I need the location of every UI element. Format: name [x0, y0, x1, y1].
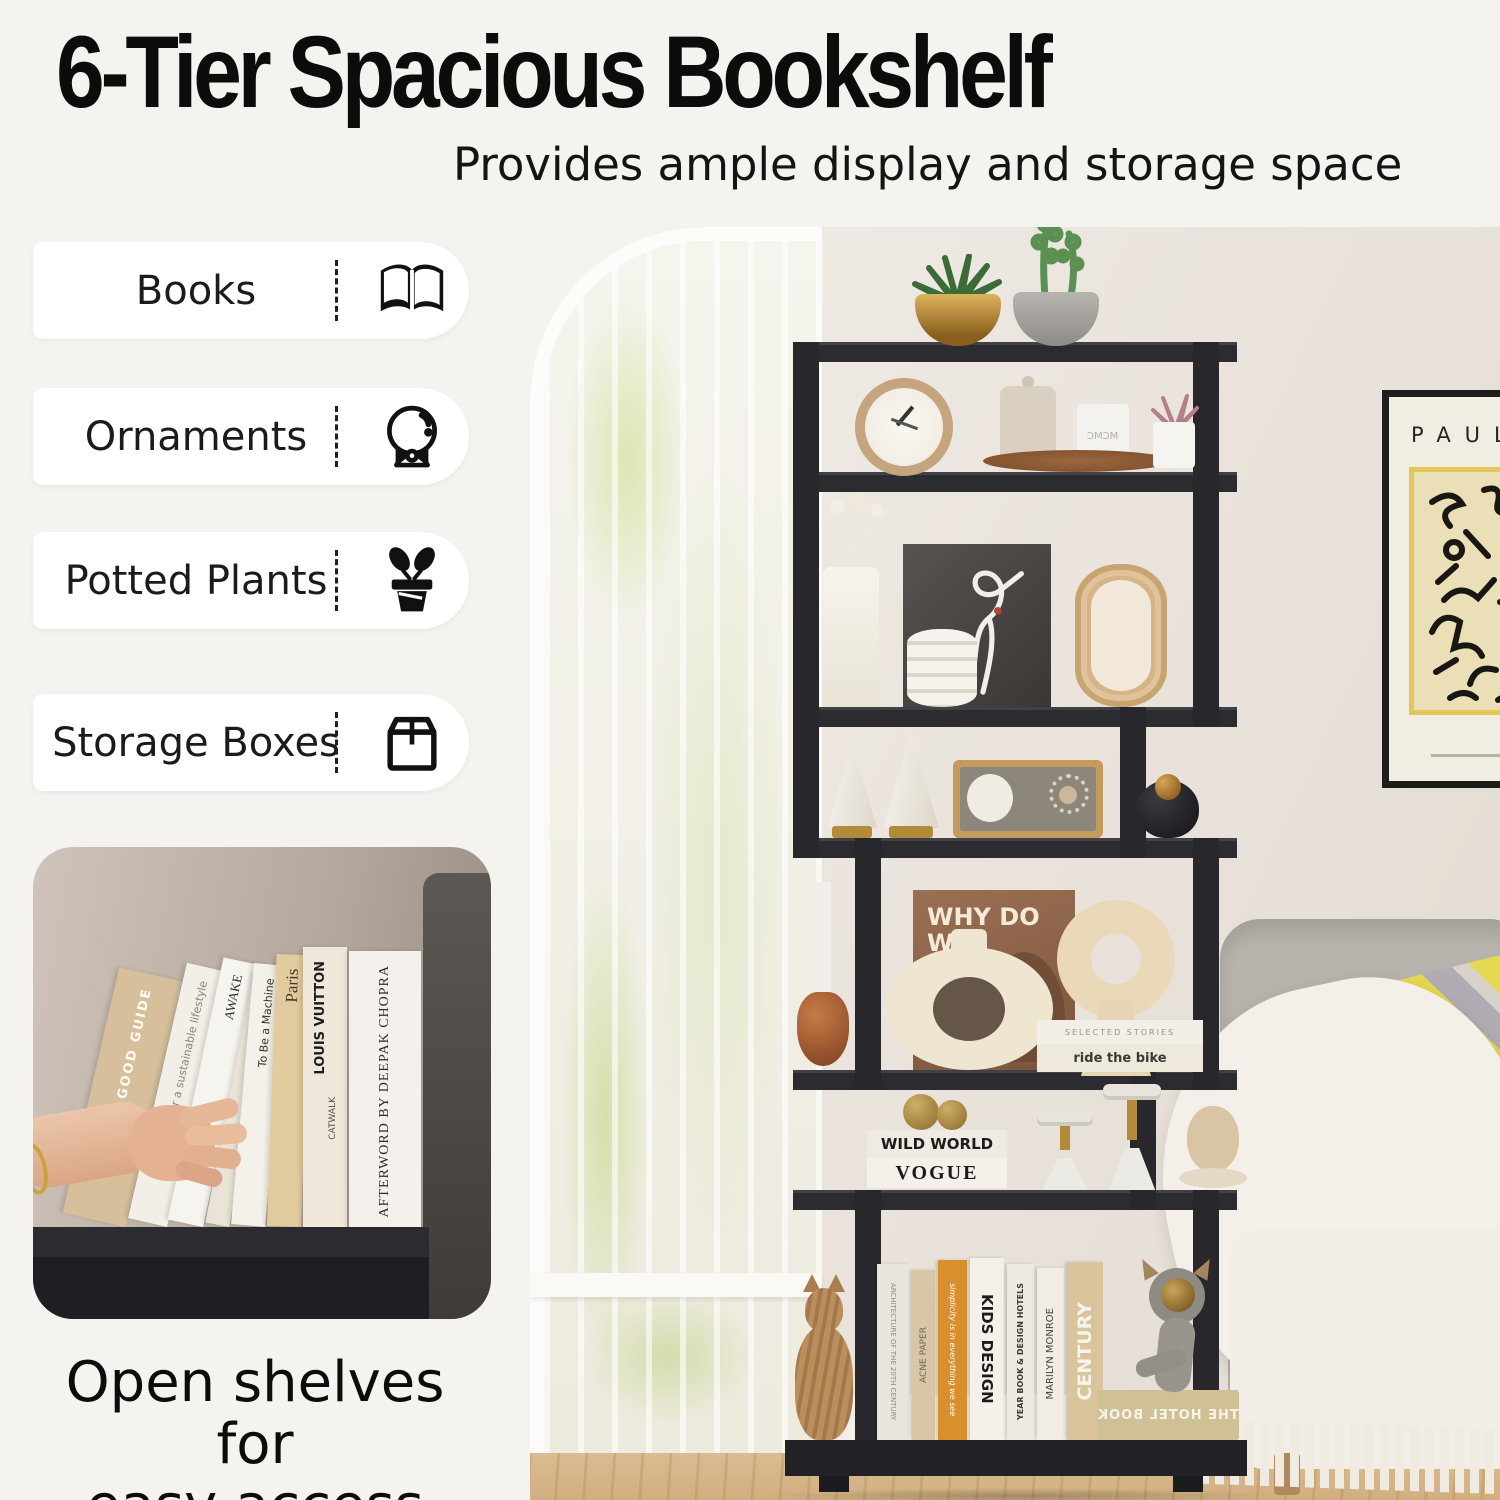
sheer-curtain — [544, 241, 822, 1453]
page-title: 6-Tier Spacious Bookshelf — [56, 14, 1049, 131]
shelf-base — [785, 1440, 1247, 1476]
shelf-board — [33, 1227, 429, 1257]
book-spine: KIDS DESIGN — [970, 1258, 1004, 1440]
poster-caption-line — [1431, 754, 1500, 757]
gold-ball-ornament — [937, 1100, 967, 1130]
book-spine: MARILYN MONROE — [1037, 1268, 1064, 1440]
gold-ball-ornament — [903, 1094, 939, 1130]
window-sill — [530, 1273, 822, 1297]
poster-artwork — [1409, 467, 1500, 715]
feature-label: Potted Plants — [51, 532, 341, 629]
cone-base — [832, 826, 872, 838]
dashed-divider — [335, 550, 338, 611]
carved-ornament — [1183, 1090, 1243, 1188]
donut-vase — [885, 937, 1053, 1070]
book-spine: ACNE PAPER — [912, 1270, 935, 1440]
radio-speaker — [967, 774, 1013, 822]
potted-plant-icon — [371, 540, 453, 622]
page-subtitle: Provides ample display and storage space — [453, 138, 1402, 191]
tall-succulent — [1011, 227, 1103, 296]
dashed-divider — [335, 712, 338, 773]
book-spine: YEAR BOOK & DESIGN HOTELS — [1007, 1264, 1034, 1440]
wall-art-poster: PAUL — [1382, 390, 1500, 788]
shelf-board-1 — [793, 342, 1237, 362]
crystal-ball-icon — [371, 396, 453, 478]
shelf-board-3 — [793, 707, 1237, 727]
feature-pill-potted-plants: Potted Plants — [33, 532, 469, 629]
radio-knob — [1059, 786, 1077, 804]
shelf-foot — [1173, 1476, 1203, 1492]
shelf-panel — [1193, 472, 1219, 727]
book-ride-the-bike: ride the bike — [1037, 1044, 1203, 1072]
cone-ornament — [883, 732, 939, 828]
gold-plant-pot — [915, 294, 1001, 346]
product-infographic: 6-Tier Spacious Bookshelf Provides ample… — [0, 0, 1500, 1500]
book-row: ARCHITECTURE OF THE 20TH CENTURY ACNE PA… — [877, 1258, 1103, 1440]
feature-pill-books: Books — [33, 242, 469, 339]
dashed-divider — [335, 260, 338, 321]
copper-candlestick — [797, 992, 849, 1066]
wooden-cat-figurine — [787, 1282, 861, 1440]
shelf-board-face — [33, 1257, 429, 1319]
book-spine: simplicity is in everything we see — [938, 1260, 967, 1440]
wooden-tray — [983, 450, 1171, 472]
stacked-books: WILD WORLD VOGUE — [867, 1130, 1007, 1188]
feature-label: Storage Boxes — [51, 694, 341, 791]
book-selected-stories: SELECTED STORIES — [1037, 1020, 1203, 1044]
open-book-icon — [371, 250, 453, 332]
astronaut-figurine — [1123, 1268, 1223, 1396]
table-clock — [855, 378, 953, 476]
white-plant-pot — [1153, 422, 1195, 468]
book-vogue: VOGUE — [867, 1158, 1007, 1188]
black-bowl-ornament — [1137, 780, 1199, 838]
wavy-mirror — [1075, 564, 1167, 707]
book-afterword: AFTERWORD BY DEEPAK CHOPRA — [349, 951, 421, 1227]
shelf-board-2 — [793, 472, 1237, 492]
vintage-radio — [953, 760, 1103, 838]
arched-window — [530, 227, 822, 1453]
inset-caption: Open shelves for easy access — [20, 1352, 490, 1500]
shelf-panel — [855, 838, 881, 1090]
stacked-books: SELECTED STORIES ride the bike — [1037, 1020, 1203, 1072]
feature-pill-storage-boxes: Storage Boxes — [33, 694, 469, 791]
feature-label: Books — [51, 242, 341, 339]
shelf-left-spine — [793, 342, 819, 858]
dashed-divider — [335, 406, 338, 467]
bookshelf-side-panel — [423, 873, 491, 1319]
six-tier-bookshelf: MCMC — [785, 342, 1247, 1494]
inset-photo-open-shelf: IS A GOOD GUIDE for a sustainable lifest… — [33, 847, 491, 1319]
shelf-panel — [1120, 707, 1146, 858]
white-vase — [823, 567, 879, 707]
main-photo-living-room: PAUL — [530, 227, 1500, 1500]
book-louis-vuitton: LOUIS VUITTON CATWALK — [303, 947, 347, 1227]
cone-base — [889, 826, 933, 838]
taper-candle — [815, 882, 831, 1000]
gray-plant-pot — [1013, 292, 1099, 346]
shelf-foot — [819, 1476, 849, 1492]
feature-pill-ornaments: Ornaments — [33, 388, 469, 485]
poster-title: PAUL — [1411, 423, 1500, 447]
flat-book: THE HOTEL BOOK — [1097, 1390, 1239, 1440]
storage-box-icon — [371, 702, 453, 784]
feature-label: Ornaments — [51, 388, 341, 485]
book-wild-world: WILD WORLD — [867, 1130, 1007, 1158]
marble-candle-holder — [1037, 1110, 1093, 1190]
ribbed-vase — [907, 629, 977, 707]
dried-flowers — [815, 492, 895, 572]
cone-ornament — [827, 744, 877, 828]
marble-candle-holder — [1103, 1084, 1161, 1190]
book-spine: ARCHITECTURE OF THE 20TH CENTURY — [877, 1264, 909, 1440]
